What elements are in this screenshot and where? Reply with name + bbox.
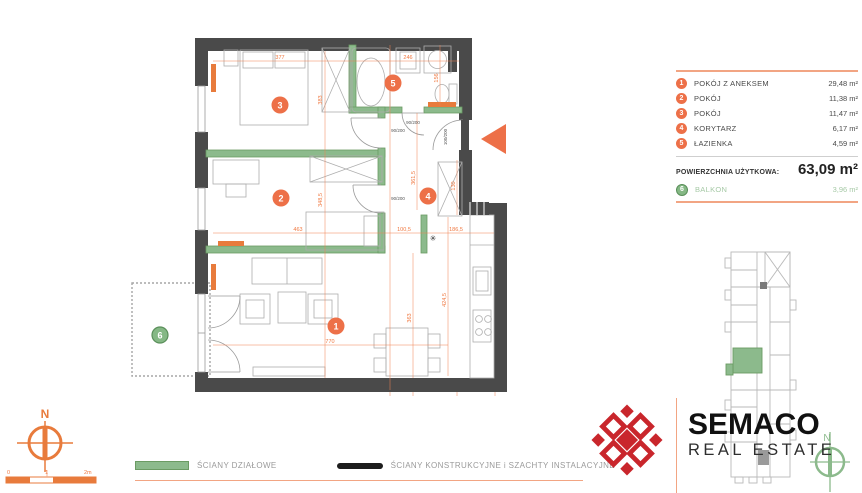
north-compass: N bbox=[17, 407, 73, 472]
svg-text:363: 363 bbox=[407, 313, 413, 322]
svg-text:5: 5 bbox=[390, 79, 395, 89]
room-number-badge: 3 bbox=[676, 108, 687, 119]
room-area: 6,17 m² bbox=[833, 124, 858, 133]
svg-text:463: 463 bbox=[293, 227, 302, 233]
semaco-logo-text: SEMACO REAL ESTATE bbox=[688, 412, 835, 460]
room-area: 29,48 m² bbox=[828, 79, 858, 88]
svg-text:770: 770 bbox=[325, 339, 334, 345]
svg-text:4: 4 bbox=[425, 192, 430, 202]
room-name: POKÓJ Z ANEKSEM bbox=[694, 79, 769, 88]
door-room3 bbox=[351, 118, 381, 148]
legend: ŚCIANY DZIAŁOWE ŚCIANY KONSTRUKCYJNE i S… bbox=[135, 461, 615, 470]
wardrobe-room3 bbox=[322, 48, 350, 112]
svg-text:186,5: 186,5 bbox=[449, 227, 463, 233]
svg-text:N: N bbox=[41, 407, 50, 421]
room-badge-5: 5 bbox=[385, 75, 402, 92]
room-row-4: 4 KORYTARZ 6,17 m² bbox=[676, 121, 858, 136]
toilet bbox=[435, 84, 457, 104]
room-row-2: 2 POKÓJ 11,38 m² bbox=[676, 91, 858, 106]
room-number-badge: 5 bbox=[676, 138, 687, 149]
semaco-title: SEMACO bbox=[688, 412, 835, 438]
room-name: POKÓJ bbox=[694, 94, 721, 103]
room-list-panel: 1 POKÓJ Z ANEKSEM 29,48 m² 2 POKÓJ 11,38… bbox=[676, 70, 858, 203]
sofa bbox=[252, 258, 322, 284]
door-balcony bbox=[208, 296, 240, 372]
room-list: 1 POKÓJ Z ANEKSEM 29,48 m² 2 POKÓJ 11,38… bbox=[676, 72, 858, 153]
room-area: 4,59 m² bbox=[833, 139, 858, 148]
semaco-subtitle: REAL ESTATE bbox=[688, 441, 835, 460]
tv-bench bbox=[253, 367, 325, 376]
svg-text:383: 383 bbox=[318, 95, 324, 104]
dining-table bbox=[374, 328, 440, 376]
partition-wall-label: ŚCIANY DZIAŁOWE bbox=[197, 461, 277, 470]
svg-text:377: 377 bbox=[275, 55, 284, 61]
svg-text:1: 1 bbox=[333, 322, 338, 332]
floorplan-page: 377 246 383 348,5 156 463 100,5 186,5 36… bbox=[0, 0, 862, 493]
windows bbox=[195, 86, 208, 372]
semaco-logo: SEMACO REAL ESTATE bbox=[588, 400, 835, 480]
svg-text:348,5: 348,5 bbox=[318, 193, 324, 207]
structural-wall-label: ŚCIANY KONSTRUKCYJNE i SZACHTY INSTALACY… bbox=[391, 461, 615, 470]
svg-text:6: 6 bbox=[157, 331, 162, 341]
usable-area-total: POWIERZCHNIA UŻYTKOWA: 63,09 m² bbox=[676, 161, 858, 178]
room-number-badge: 4 bbox=[676, 123, 687, 134]
wardrobe-room2 bbox=[310, 156, 382, 182]
room-number-badge: 1 bbox=[676, 78, 687, 89]
svg-text:361,5: 361,5 bbox=[411, 171, 417, 185]
door-room2 bbox=[353, 185, 381, 213]
balcony-number-badge: 6 bbox=[676, 184, 688, 196]
room-badge-6: 6 bbox=[152, 327, 168, 343]
vent-symbol: ✳ bbox=[430, 234, 437, 243]
panel-bottom-rule bbox=[676, 201, 858, 203]
svg-text:2: 2 bbox=[278, 194, 283, 204]
svg-text:0: 0 bbox=[7, 470, 10, 476]
room-name: KORYTARZ bbox=[694, 124, 737, 133]
svg-text:90/200: 90/200 bbox=[391, 196, 405, 201]
structural-wall-swatch bbox=[337, 463, 383, 469]
svg-text:100,5: 100,5 bbox=[397, 227, 411, 233]
entrance-arrow-icon bbox=[481, 124, 506, 154]
room-name: POKÓJ bbox=[694, 109, 721, 118]
installation-shaft bbox=[463, 202, 489, 215]
svg-text:246: 246 bbox=[403, 55, 412, 61]
radiators bbox=[211, 64, 456, 290]
balcony-area: 3,96 m² bbox=[833, 185, 858, 194]
panel-separator bbox=[676, 156, 858, 157]
door-entrance bbox=[433, 120, 469, 151]
balcony-row: 6 BALKON 3,96 m² bbox=[676, 182, 858, 197]
semaco-knot-icon bbox=[588, 400, 666, 480]
svg-text:90/200: 90/200 bbox=[406, 120, 420, 125]
legend-underline bbox=[135, 480, 583, 481]
room-number-badge: 2 bbox=[676, 93, 687, 104]
svg-text:90/200: 90/200 bbox=[391, 128, 405, 133]
usable-area-value: 63,09 m² bbox=[798, 161, 858, 178]
door-labels: 90/200 90/200 90/200 100/200 bbox=[391, 120, 448, 201]
room-row-3: 3 POKÓJ 11,47 m² bbox=[676, 106, 858, 121]
usable-area-label: POWIERZCHNIA UŻYTKOWA: bbox=[676, 169, 779, 176]
bed-room2 bbox=[306, 212, 384, 250]
scale-bar: 0 1 2m bbox=[6, 470, 96, 483]
svg-text:100/200: 100/200 bbox=[443, 128, 448, 145]
svg-text:424,5: 424,5 bbox=[442, 293, 448, 307]
room-badge-2: 2 bbox=[273, 190, 290, 207]
room-row-5: 5 ŁAZIENKA 4,59 m² bbox=[676, 136, 858, 151]
svg-text:2m: 2m bbox=[84, 470, 92, 476]
room-area: 11,38 m² bbox=[829, 94, 858, 103]
room-badges: 1 2 3 4 5 6 bbox=[152, 75, 437, 344]
room-row-1: 1 POKÓJ Z ANEKSEM 29,48 m² bbox=[676, 76, 858, 91]
room-area: 11,47 m² bbox=[829, 109, 858, 118]
desk-room2 bbox=[213, 160, 259, 197]
room-badge-4: 4 bbox=[420, 188, 437, 205]
room-badge-1: 1 bbox=[328, 318, 345, 335]
svg-text:1: 1 bbox=[45, 470, 48, 476]
svg-text:130: 130 bbox=[451, 181, 457, 190]
svg-text:156: 156 bbox=[434, 73, 440, 82]
svg-text:3: 3 bbox=[277, 101, 282, 111]
wardrobe-corridor bbox=[438, 162, 462, 216]
partition-wall-swatch bbox=[135, 461, 189, 470]
armchairs-and-table bbox=[240, 292, 338, 324]
room-name: ŁAZIENKA bbox=[694, 139, 733, 148]
kitchen-counter bbox=[470, 215, 494, 378]
room-badge-3: 3 bbox=[272, 97, 289, 114]
balcony-name: BALKON bbox=[695, 185, 727, 194]
bathtub bbox=[352, 48, 390, 112]
